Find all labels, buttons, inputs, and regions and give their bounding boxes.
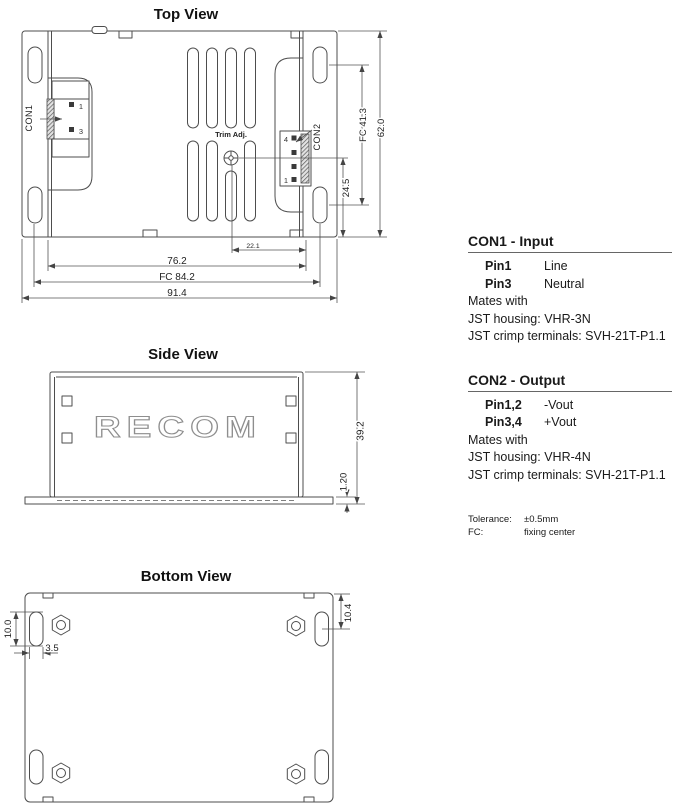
con1-heading: CON1 - Input (468, 233, 672, 253)
dim-slot-width: 3.5 (45, 643, 58, 654)
dim-height: 39.2 (356, 421, 367, 441)
dim-slot-offset: 10.4 (343, 604, 354, 623)
dim-trim-offset: 22.1 (246, 243, 259, 250)
cover-tab (143, 230, 157, 237)
pin-assignment-row: Pin1 Line (468, 258, 672, 276)
mates-with-note: Mates with (468, 432, 672, 450)
housing-note: JST housing: VHR-4N (468, 449, 672, 467)
bottom-view: Bottom View (3, 568, 354, 802)
extension-lines (22, 31, 387, 303)
pin-assignment-row: Pin1,2 -Vout (468, 397, 672, 415)
bottom-dimensions (10, 594, 350, 659)
pin-name: Pin1 (485, 258, 544, 276)
pin-signal: -Vout (544, 397, 573, 415)
mates-with-note: Mates with (468, 293, 672, 311)
crimp-note: JST crimp terminals: SVH-21T-P1.1 (468, 467, 672, 485)
dim-body-width: 76.2 (167, 256, 187, 267)
cover-tab (291, 31, 303, 38)
pin-number: 3 (79, 127, 83, 136)
connector-pin (69, 127, 74, 132)
connector-pin (292, 150, 297, 155)
side-dimensions (305, 372, 365, 513)
recom-logo: RECOM (94, 411, 262, 444)
crimp-note: JST crimp terminals: SVH-21T-P1.1 (468, 328, 672, 346)
connector-notes: CON1 - Input Pin1 Line Pin3 Neutral Mate… (468, 233, 672, 539)
trim-adj-label: Trim Adj. (215, 130, 247, 139)
pin-assignment-row: Pin3,4 +Vout (468, 414, 672, 432)
mounting-slot (28, 47, 42, 83)
pin-number: 1 (79, 102, 83, 111)
fc-note: FC:fixing center (468, 527, 672, 540)
con1-info-block: CON1 - Input Pin1 Line Pin3 Neutral Mate… (468, 233, 672, 346)
mounting-slot (313, 47, 327, 83)
cover-tab (290, 230, 303, 237)
pin-signal: +Vout (544, 414, 576, 432)
top-view-title: Top View (154, 6, 219, 23)
connector-pin (292, 164, 297, 169)
connector-pin (292, 177, 297, 182)
bottom-view-title: Bottom View (141, 568, 232, 585)
dim-slot-length: 10.0 (3, 620, 14, 639)
datasheet-mechanical-page: { "views": { "top": { "title": "Top View… (0, 0, 675, 808)
hex-standoffs (52, 615, 304, 784)
mounting-slots-bottom (30, 612, 329, 784)
side-view: Side View RECOM 39.2 1.20 (25, 346, 367, 513)
mounting-slot (28, 187, 42, 223)
con2-info-block: CON2 - Output Pin1,2 -Vout Pin3,4 +Vout … (468, 372, 672, 485)
corner-notches (43, 593, 314, 802)
pin-signal: Line (544, 258, 568, 276)
side-view-title: Side View (148, 346, 218, 363)
con2-hatch-strip (301, 134, 309, 183)
pin-number: 4 (284, 135, 288, 144)
dim-fixing-width: FC 84.2 (159, 272, 195, 283)
con1-connector: 1 3 (47, 78, 92, 190)
con2-heading: CON2 - Output (468, 372, 672, 392)
housing-note: JST housing: VHR-3N (468, 311, 672, 329)
footnote-value: ±0.5mm (524, 514, 558, 525)
dim-trim-to-base: 24.5 (341, 179, 352, 198)
footnote-value: fixing center (524, 527, 575, 538)
drawing-footnotes: Tolerance:±0.5mm FC:fixing center (468, 514, 672, 539)
trim-screw-icon (224, 151, 238, 165)
pin-number: 1 (284, 176, 288, 185)
footnote-label: FC: (468, 527, 524, 540)
pin-name: Pin3,4 (485, 414, 544, 432)
footnote-label: Tolerance: (468, 514, 524, 527)
con1-label: CON1 (24, 104, 34, 131)
pin-name: Pin3 (485, 276, 544, 294)
con2-label: CON2 (312, 123, 322, 150)
connector-pin (292, 136, 297, 141)
dim-overall-width: 91.4 (167, 288, 187, 299)
dim-overall-depth: 62.0 (376, 119, 387, 138)
cover-tab (119, 31, 132, 38)
pin-name: Pin1,2 (485, 397, 544, 415)
tolerance-note: Tolerance:±0.5mm (468, 514, 672, 527)
dim-fixing-depth: FC 41.3 (358, 108, 369, 142)
edge-bump (92, 27, 107, 34)
dimension-lines (22, 31, 380, 298)
top-view: Top View (22, 6, 387, 303)
connector-pin (69, 102, 74, 107)
pin-signal: Neutral (544, 276, 584, 294)
dim-base-thickness: 1.20 (339, 473, 350, 492)
pin-assignment-row: Pin3 Neutral (468, 276, 672, 294)
mounting-slot (313, 187, 327, 223)
